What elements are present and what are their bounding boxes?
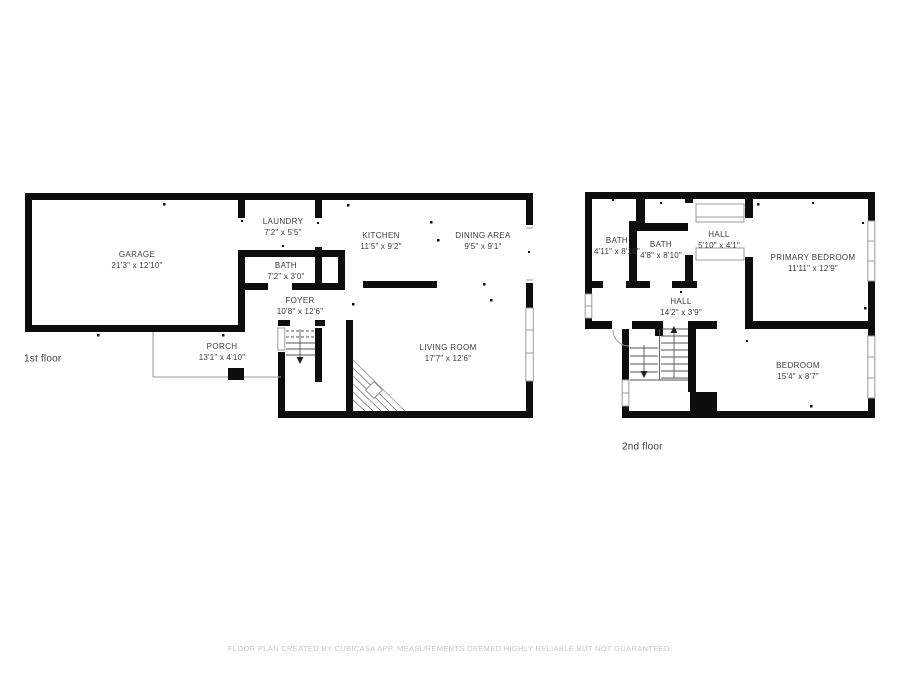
- room-name: FOYER: [277, 295, 323, 306]
- room-name: BATH: [640, 239, 682, 250]
- room-label-bath-2f-left: BATH 4'11" x 8'10": [594, 235, 640, 257]
- room-label-bath-1f: BATH 7'2" x 3'0": [267, 260, 304, 282]
- room-dims: 4'11" x 8'10": [594, 246, 640, 257]
- room-name: BATH: [594, 235, 640, 246]
- room-dims: 9'5" x 9'1": [455, 241, 510, 252]
- room-dims: 7'2" x 3'0": [267, 271, 304, 282]
- room-label-living-room: LIVING ROOM 17'7" x 12'6": [419, 342, 476, 364]
- room-name: HALL: [660, 296, 702, 307]
- room-dims: 5'10" x 4'1": [698, 240, 740, 251]
- room-label-primary-bedroom: PRIMARY BEDROOM 11'11" x 12'9": [771, 252, 856, 274]
- room-dims: 11'11" x 12'9": [771, 263, 856, 274]
- room-dims: 7'2" x 5'5": [263, 227, 304, 238]
- room-dims: 21'3" x 12'10": [111, 260, 162, 271]
- room-name: LIVING ROOM: [419, 342, 476, 353]
- room-label-bedroom: BEDROOM 15'4" x 8'7": [776, 360, 820, 382]
- room-label-hall-upper: HALL 5'10" x 4'1": [698, 229, 740, 251]
- room-label-dining-area: DINING AREA 9'5" x 9'1": [455, 230, 510, 252]
- room-dims: 17'7" x 12'6": [419, 353, 476, 364]
- room-label-hall-lower: HALL 14'2" x 3'9": [660, 296, 702, 318]
- room-dims: 14'2" x 3'9": [660, 307, 702, 318]
- room-dims: 10'8" x 12'6": [277, 306, 323, 317]
- staircase: [630, 329, 688, 380]
- room-name: KITCHEN: [360, 230, 401, 241]
- floor-plan-canvas: GARAGE 21'3" x 12'10" LAUNDRY 7'2" x 5'5…: [0, 0, 900, 675]
- stair-arrow-down: [641, 371, 648, 378]
- room-name: PRIMARY BEDROOM: [771, 252, 856, 263]
- footer-disclaimer: FLOOR PLAN CREATED BY CUBICASA APP. MEAS…: [0, 644, 900, 653]
- room-dims: 11'5" x 9'2": [360, 241, 401, 252]
- room-label-laundry: LAUNDRY 7'2" x 5'5": [263, 216, 304, 238]
- room-dims: 13'1" x 4'10": [199, 352, 245, 363]
- entry-step: [228, 368, 244, 380]
- room-name: BATH: [267, 260, 304, 271]
- floor-label-1st: 1st floor: [24, 354, 61, 365]
- room-name: GARAGE: [111, 249, 162, 260]
- second-floor-plan: [585, 192, 875, 418]
- stair-arrow-down: [297, 357, 304, 364]
- room-name: PORCH: [199, 341, 245, 352]
- room-name: DINING AREA: [455, 230, 510, 241]
- room-name: HALL: [698, 229, 740, 240]
- stair-arrow-up: [671, 326, 678, 333]
- room-name: BEDROOM: [776, 360, 820, 371]
- room-label-kitchen: KITCHEN 11'5" x 9'2": [360, 230, 401, 252]
- room-label-foyer: FOYER 10'8" x 12'6": [277, 295, 323, 317]
- room-label-garage: GARAGE 21'3" x 12'10": [111, 249, 162, 271]
- floor-plan-drawing: [0, 0, 900, 675]
- room-name: LAUNDRY: [263, 216, 304, 227]
- under-stair-hatch: [353, 360, 405, 411]
- room-dims: 4'8" x 8'10": [640, 250, 682, 261]
- staircase: [286, 329, 315, 358]
- room-label-bath-2f-mid: BATH 4'8" x 8'10": [640, 239, 682, 261]
- room-label-porch: PORCH 13'1" x 4'10": [199, 341, 245, 363]
- room-dims: 15'4" x 8'7": [776, 371, 820, 382]
- floor-label-2nd: 2nd floor: [622, 442, 663, 453]
